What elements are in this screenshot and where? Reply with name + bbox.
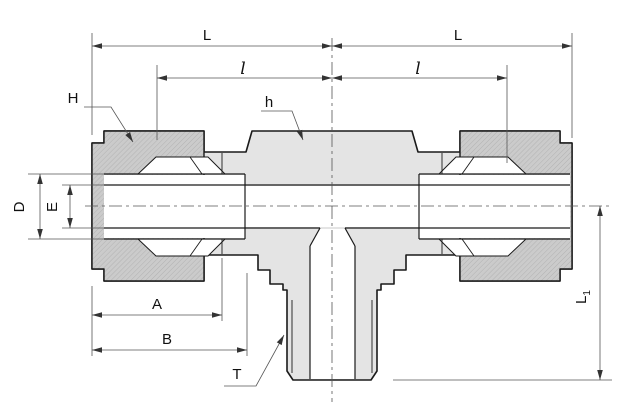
label-A: A	[152, 296, 162, 313]
label-T: T	[232, 366, 241, 383]
label-D: D	[11, 201, 28, 212]
label-h: h	[265, 94, 273, 111]
label-L-right: L	[454, 27, 462, 44]
label-E: E	[44, 202, 61, 212]
drawing-canvas: L L l l H h D E A B T L1	[0, 0, 629, 412]
label-L1-main: L	[573, 296, 590, 304]
label-H: H	[68, 90, 79, 107]
label-l-right: l	[415, 59, 420, 79]
label-L1-sub: 1	[582, 290, 593, 296]
label-L-left: L	[203, 27, 211, 44]
tee-fitting-technical-drawing: L L l l H h D E A B T L1	[0, 0, 629, 412]
label-B: B	[162, 331, 172, 348]
label-l-left: l	[240, 59, 245, 79]
